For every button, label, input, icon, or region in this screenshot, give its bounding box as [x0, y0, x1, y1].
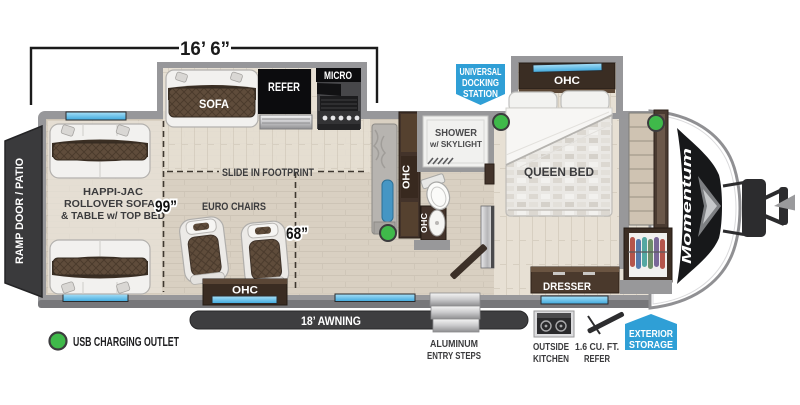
svg-text:Momentum: Momentum — [679, 147, 694, 264]
svg-text:w/ SKYLIGHT: w/ SKYLIGHT — [429, 139, 483, 149]
svg-text:OHC: OHC — [402, 165, 413, 189]
svg-text:USB CHARGING OUTLET: USB CHARGING OUTLET — [73, 334, 179, 349]
svg-text:MICRO: MICRO — [324, 70, 352, 82]
svg-text:KITCHEN: KITCHEN — [533, 353, 569, 365]
svg-text:EURO CHAIRS: EURO CHAIRS — [202, 201, 266, 213]
svg-text:SOFA: SOFA — [199, 97, 229, 111]
svg-text:1.6 CU. FT.: 1.6 CU. FT. — [575, 341, 619, 353]
svg-text:DOCKING: DOCKING — [462, 78, 499, 89]
svg-text:ALUMINUM: ALUMINUM — [430, 338, 478, 350]
svg-text:ENTRY STEPS: ENTRY STEPS — [427, 350, 481, 362]
svg-text:68”: 68” — [286, 224, 308, 243]
svg-text:STATION: STATION — [463, 89, 498, 100]
svg-text:RAMP DOOR / PATIO: RAMP DOOR / PATIO — [14, 158, 26, 264]
svg-text:& TABLE w/ TOP BED: & TABLE w/ TOP BED — [61, 210, 165, 222]
svg-text:18’ AWNING: 18’ AWNING — [301, 314, 361, 328]
svg-text:EXTERIOR: EXTERIOR — [629, 329, 674, 340]
svg-text:OHC: OHC — [554, 75, 580, 87]
svg-text:STORAGE: STORAGE — [629, 340, 673, 351]
svg-text:SHOWER: SHOWER — [435, 127, 477, 139]
svg-text:REFER: REFER — [268, 80, 300, 94]
svg-text:99”: 99” — [155, 197, 177, 216]
svg-text:DRESSER: DRESSER — [543, 281, 591, 293]
svg-text:OHC: OHC — [232, 285, 258, 297]
svg-text:UNIVERSAL: UNIVERSAL — [460, 67, 502, 78]
svg-text:ROLLOVER SOFAS: ROLLOVER SOFAS — [64, 198, 162, 210]
svg-text:OHC: OHC — [420, 213, 429, 233]
svg-text:HAPPI-JAC: HAPPI-JAC — [83, 186, 143, 198]
svg-text:REFER: REFER — [584, 353, 610, 365]
svg-text:QUEEN BED: QUEEN BED — [524, 167, 594, 179]
svg-text:SLIDE IN FOOTPRINT: SLIDE IN FOOTPRINT — [222, 167, 314, 179]
svg-text:16’ 6”: 16’ 6” — [180, 39, 230, 60]
svg-text:OUTSIDE: OUTSIDE — [533, 341, 569, 353]
